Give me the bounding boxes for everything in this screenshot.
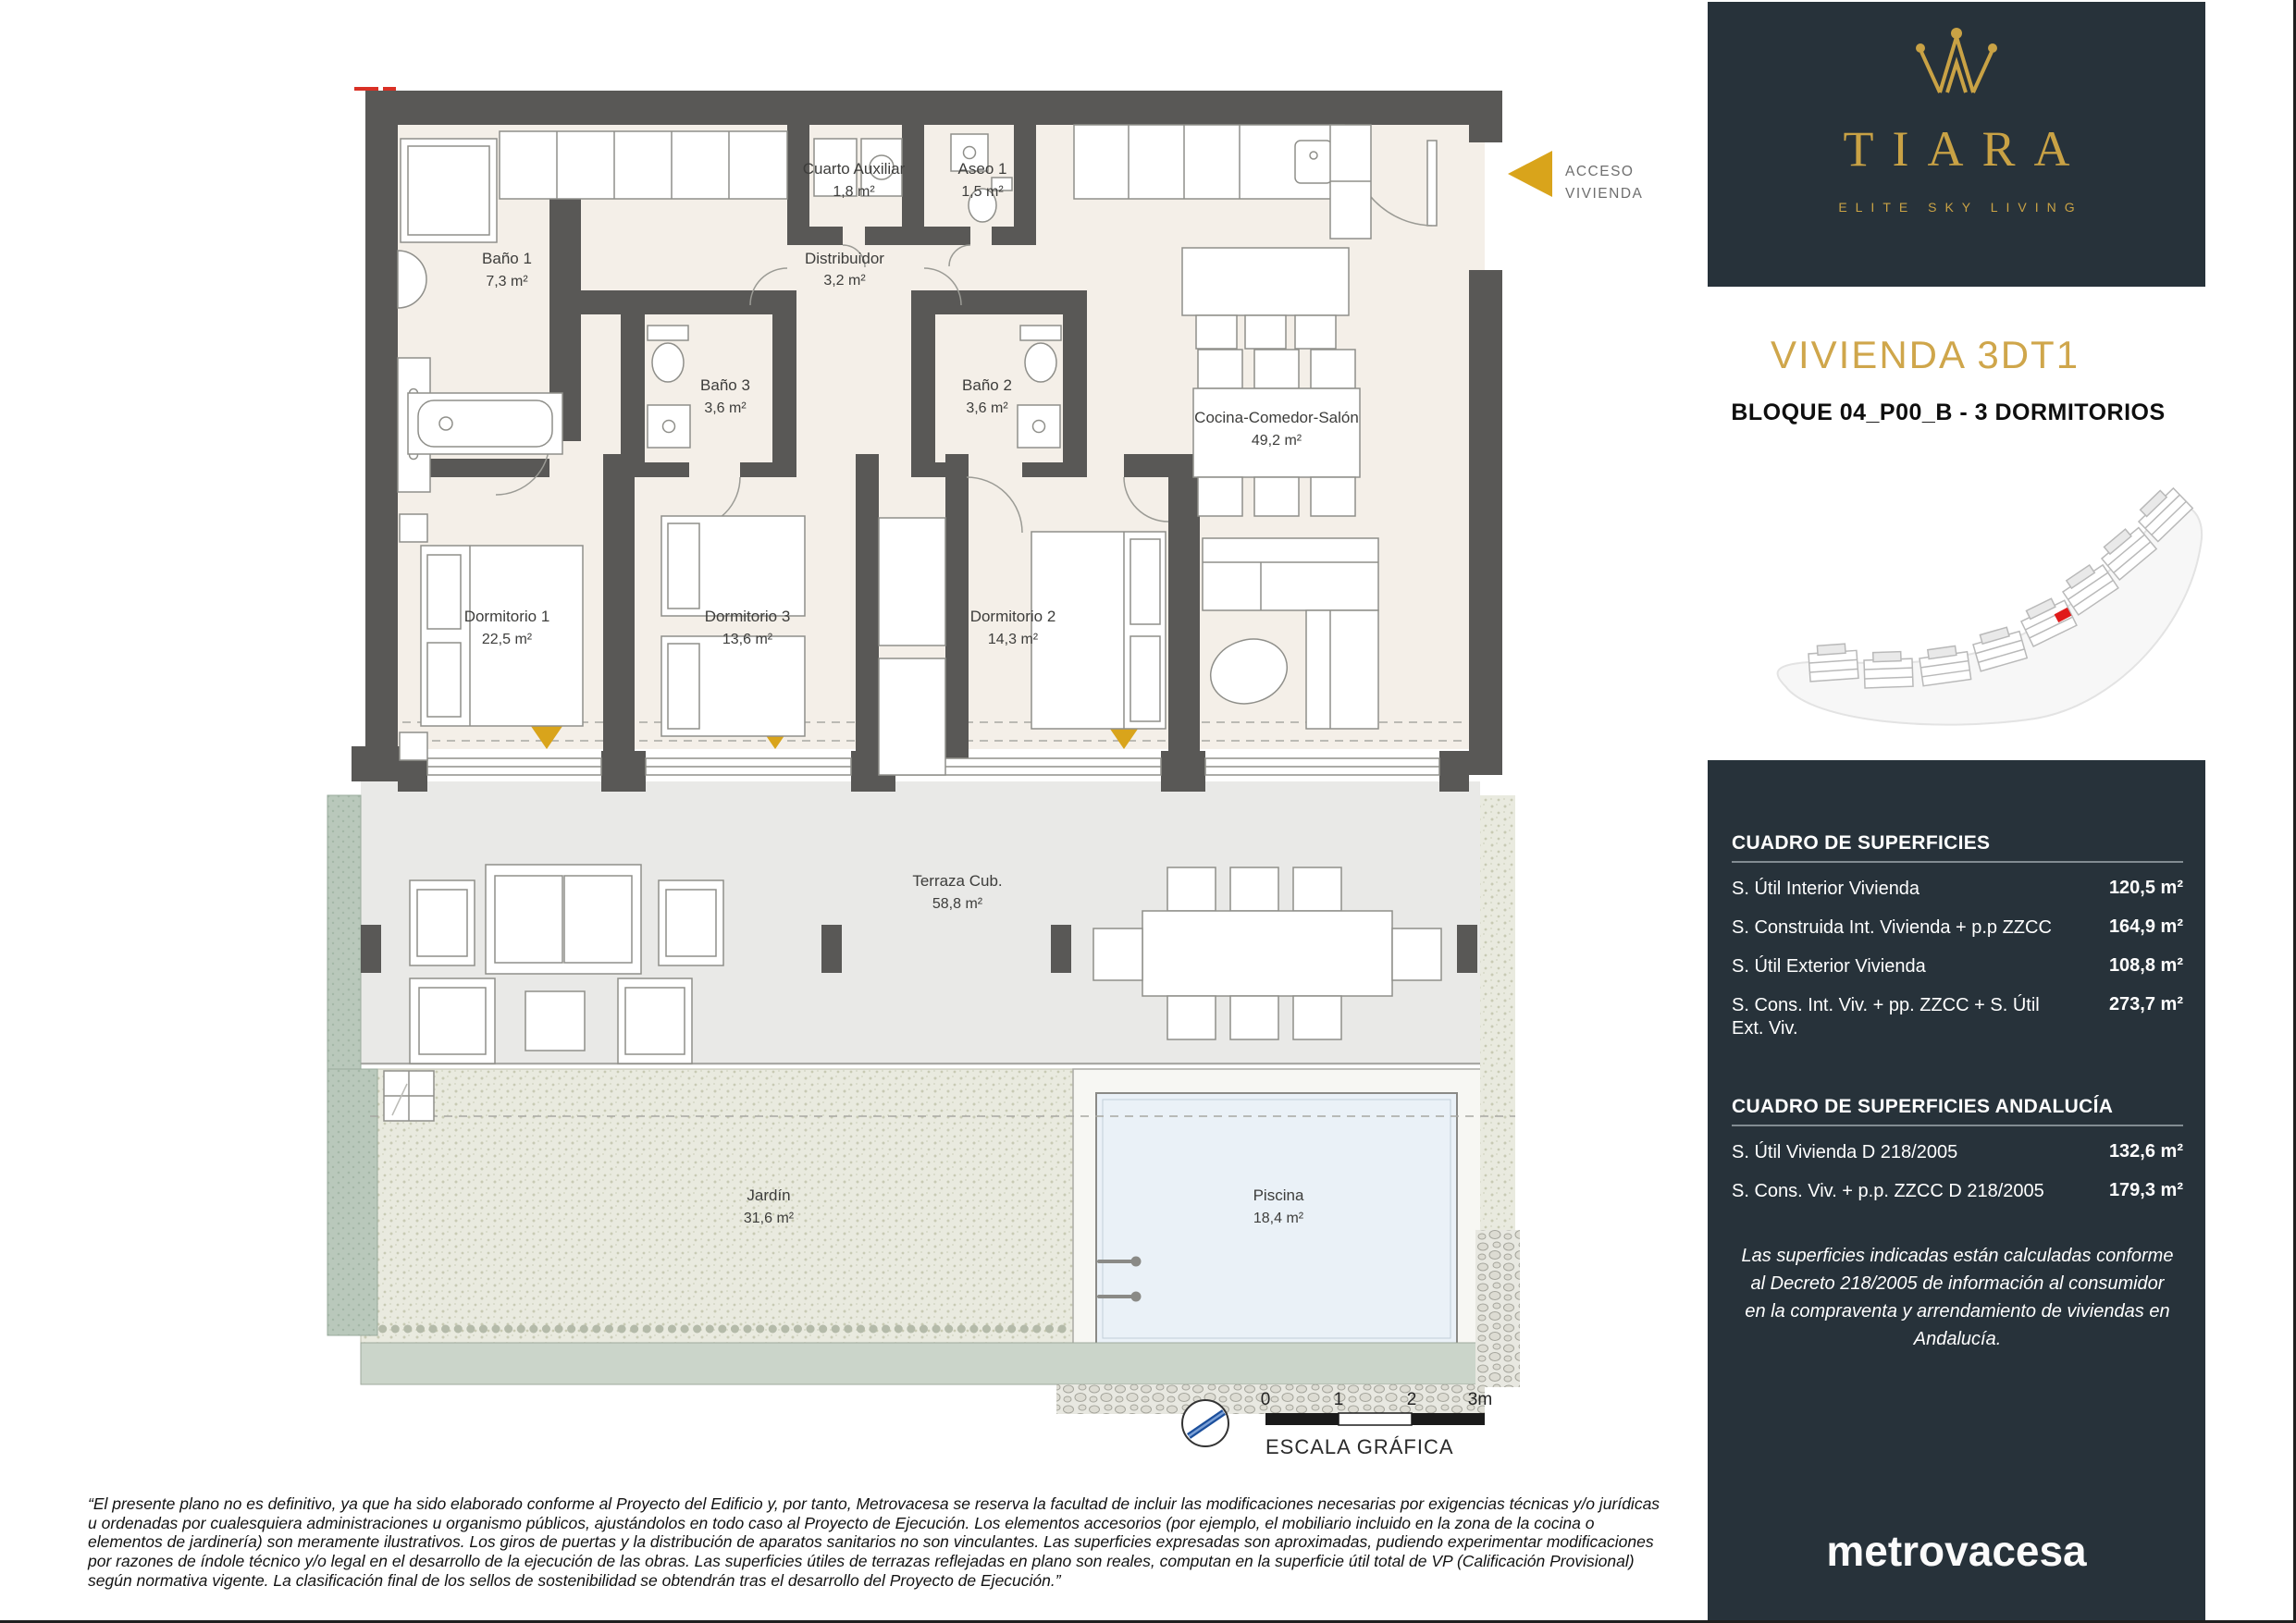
scale-caption: ESCALA GRÁFICA bbox=[1265, 1435, 1454, 1458]
surface-row-label: S. Útil Vivienda D 218/2005 bbox=[1732, 1141, 1957, 1164]
decree-note: Las superficies indicadas están calculad… bbox=[1732, 1242, 2183, 1353]
floorplan-brochure-page: ACCESO VIVIENDA bbox=[0, 0, 2296, 1623]
pool-zone bbox=[1073, 1069, 1487, 1346]
surface-row: S. Útil Interior Vivienda 120,5 m² bbox=[1732, 878, 2183, 901]
surface-row: S. Útil Exterior Vivienda 108,8 m² bbox=[1732, 955, 2183, 978]
room-label-piscina: Piscina bbox=[1253, 1187, 1304, 1204]
room-area-bano1: 7,3 m² bbox=[486, 274, 528, 289]
brand-name: TIARA bbox=[1708, 120, 2205, 178]
room-area-dormitorio1: 22,5 m² bbox=[482, 632, 533, 647]
scale-tick-2: 2 bbox=[1407, 1390, 1417, 1409]
brand-panel: TIARA ELITE SKY LIVING bbox=[1708, 2, 2205, 287]
room-area-aseo1: 1,5 m² bbox=[961, 184, 1004, 200]
access-arrow bbox=[1508, 151, 1552, 197]
room-area-bano3: 3,6 m² bbox=[704, 400, 747, 416]
room-label-dormitorio3: Dormitorio 3 bbox=[705, 608, 791, 625]
surface-row-label: S. Cons. Viv. + p.p. ZZCC D 218/2005 bbox=[1732, 1180, 2044, 1203]
room-label-terraza: Terraza Cub. bbox=[912, 872, 1002, 890]
site-plan-render bbox=[1758, 455, 2220, 749]
bed-dormitorio2 bbox=[1031, 532, 1166, 729]
wardrobe-band bbox=[500, 131, 787, 199]
room-area-distribuidor: 3,2 m² bbox=[823, 273, 866, 289]
surface-row-value: 164,9 m² bbox=[2109, 916, 2183, 938]
room-area-salon: 49,2 m² bbox=[1252, 433, 1302, 449]
room-area-jardin: 31,6 m² bbox=[744, 1211, 795, 1226]
room-area-cuarto-auxiliar: 1,8 m² bbox=[833, 184, 875, 200]
room-area-bano2: 3,6 m² bbox=[966, 400, 1008, 416]
room-label-aseo1: Aseo 1 bbox=[958, 160, 1007, 178]
surface-row-value: 108,8 m² bbox=[2109, 955, 2183, 977]
developer-logo: metrovacesa bbox=[1708, 1526, 2205, 1576]
legal-disclaimer: “El presente plano no es definitivo, ya … bbox=[88, 1494, 1665, 1590]
brand-tagline: ELITE SKY LIVING bbox=[1708, 200, 2205, 215]
surface-row-label: S. Útil Exterior Vivienda bbox=[1732, 955, 1926, 978]
room-area-dormitorio2: 14,3 m² bbox=[988, 632, 1039, 647]
room-label-distribuidor: Distribuidor bbox=[805, 250, 884, 267]
surface-row-value: 273,7 m² bbox=[2109, 994, 2183, 1015]
scale-tick-3: 3m bbox=[1468, 1390, 1492, 1409]
room-label-bano3: Baño 3 bbox=[700, 376, 750, 394]
surface-row-value: 132,6 m² bbox=[2109, 1141, 2183, 1162]
compass bbox=[1182, 1400, 1228, 1446]
surface-row: S. Construida Int. Vivienda + p.p ZZCC 1… bbox=[1732, 916, 2183, 940]
surface-row-value: 120,5 m² bbox=[2109, 878, 2183, 899]
garden-zone bbox=[361, 1069, 1078, 1343]
surfaces-table-title: CUADRO DE SUPERFICIES bbox=[1732, 832, 2183, 863]
garden-pad bbox=[384, 1071, 434, 1121]
surface-row-label: S. Construida Int. Vivienda + p.p ZZCC bbox=[1732, 916, 2052, 940]
surface-row: S. Cons. Viv. + p.p. ZZCC D 218/2005 179… bbox=[1732, 1180, 2183, 1203]
scale-tick-0: 0 bbox=[1261, 1390, 1271, 1409]
room-label-salon: Cocina-Comedor-Salón bbox=[1194, 409, 1359, 426]
surfaces-andalucia-title: CUADRO DE SUPERFICIES ANDALUCÍA bbox=[1732, 1096, 2183, 1126]
surface-row: S. Útil Vivienda D 218/2005 132,6 m² bbox=[1732, 1141, 2183, 1164]
room-area-terraza: 58,8 m² bbox=[932, 896, 983, 912]
unit-title: VIVIENDA 3DT1 bbox=[1708, 333, 2142, 377]
unit-subtitle: BLOQUE 04_P00_B - 3 DORMITORIOS bbox=[1708, 400, 2189, 426]
room-label-dormitorio2: Dormitorio 2 bbox=[970, 608, 1056, 625]
room-label-cuarto-auxiliar: Cuarto Auxiliar bbox=[803, 160, 906, 178]
terrace-lounge-set bbox=[410, 865, 723, 1064]
scale-tick-1: 1 bbox=[1334, 1390, 1344, 1409]
surface-row-label: S. Útil Interior Vivienda bbox=[1732, 878, 1920, 901]
surface-row-label: S. Cons. Int. Viv. + pp. ZZCC + S. Útil … bbox=[1732, 994, 2055, 1040]
room-label-bano1: Baño 1 bbox=[482, 250, 532, 267]
room-area-piscina: 18,4 m² bbox=[1253, 1211, 1304, 1226]
red-crop-marks bbox=[354, 87, 396, 91]
kitchen-island bbox=[1182, 248, 1349, 349]
surface-row: S. Cons. Int. Viv. + pp. ZZCC + S. Útil … bbox=[1732, 994, 2183, 1040]
room-area-dormitorio3: 13,6 m² bbox=[722, 632, 773, 647]
surface-row-value: 179,3 m² bbox=[2109, 1180, 2183, 1201]
access-label-line2: VIVIENDA bbox=[1565, 186, 1643, 202]
room-label-jardin: Jardín bbox=[747, 1187, 790, 1204]
access-label-line1: ACCESO bbox=[1565, 164, 1634, 179]
surfaces-panel: CUADRO DE SUPERFICIES S. Útil Interior V… bbox=[1708, 760, 2205, 1623]
room-label-dormitorio1: Dormitorio 1 bbox=[464, 608, 550, 625]
room-label-bano2: Baño 2 bbox=[962, 376, 1012, 394]
crown-icon bbox=[1708, 26, 2205, 114]
